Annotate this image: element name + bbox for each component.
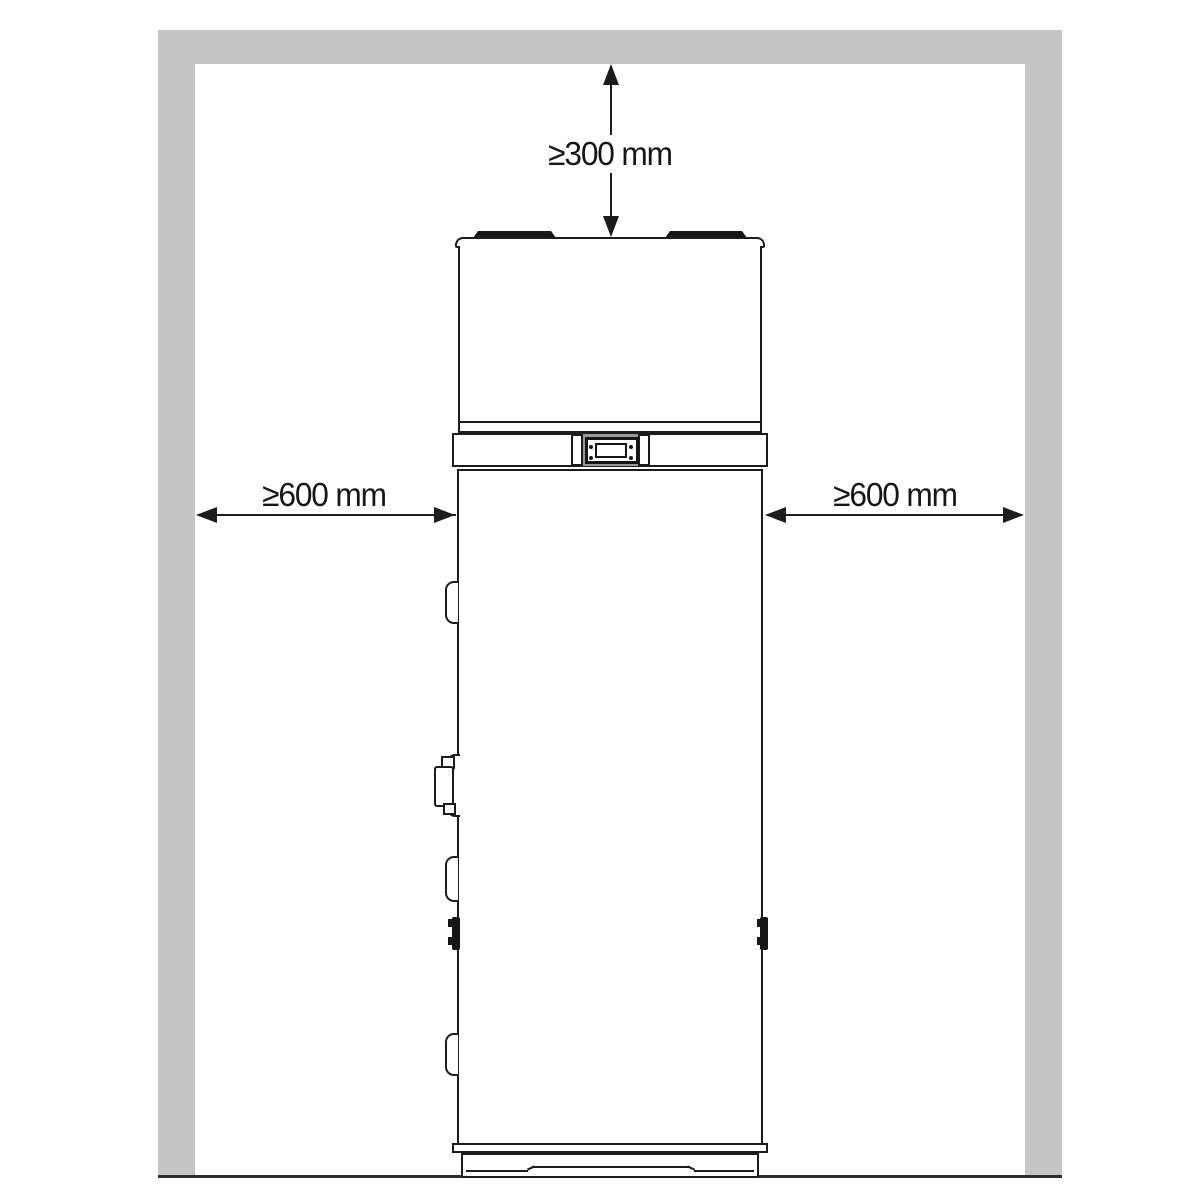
installation-clearance-diagram: ≥300 mm ≥600 mm ≥600 mm (0, 0, 1200, 1200)
panel-button-icon (629, 456, 633, 460)
arrow-left-head-icon (196, 507, 217, 523)
right-wall (1025, 30, 1062, 1175)
panel-button-icon (589, 456, 593, 460)
left-clearance-arrow-line (198, 514, 456, 516)
arrow-down-head-icon (603, 216, 619, 237)
pipe-connection-fitting (445, 1033, 458, 1076)
hinge-nub (757, 937, 763, 945)
hinge-nub (448, 919, 454, 927)
upper-unit (458, 246, 762, 433)
right-clearance-arrow-line (767, 514, 1022, 516)
arrow-right-head-icon (1003, 507, 1024, 523)
junction-box (434, 766, 454, 807)
right-clearance-label: ≥600 mm (828, 476, 961, 514)
arrow-right-head-icon (434, 507, 455, 523)
ceiling-wall (158, 30, 1062, 64)
hinge-nub (757, 919, 763, 927)
upper-unit-bottom-seam (459, 421, 761, 423)
base-step-line (532, 1166, 690, 1168)
base-step-line (466, 1170, 528, 1172)
pipe-connection-fitting (445, 856, 458, 902)
left-clearance-label: ≥600 mm (257, 476, 390, 514)
arrow-left-head-icon (765, 507, 786, 523)
arrow-up-head-icon (603, 64, 619, 85)
base-step-line (694, 1170, 754, 1172)
panel-button-icon (589, 445, 593, 449)
tank-body (457, 469, 763, 1143)
hinge-nub (448, 937, 454, 945)
left-wall (158, 30, 195, 1175)
junction-bottom-tab (443, 803, 456, 815)
top-clearance-label: ≥300 mm (543, 135, 676, 173)
display-screen (595, 443, 627, 458)
panel-side-bar-left (571, 434, 583, 466)
panel-side-bar-right (638, 434, 650, 466)
pipe-connection-fitting (445, 581, 458, 624)
bottom-rim (452, 1143, 768, 1153)
panel-button-icon (629, 445, 633, 449)
